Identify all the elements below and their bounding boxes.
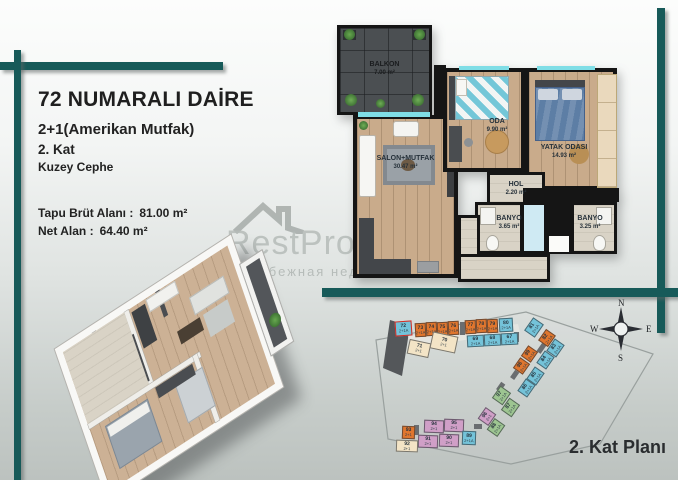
window	[459, 66, 509, 70]
window	[537, 66, 595, 70]
frame-bar-left	[14, 50, 21, 480]
site-unit-92: 922+1	[396, 440, 418, 453]
floor-plan-3d	[46, 252, 281, 470]
shower-cabin	[521, 202, 547, 254]
compass-w: W	[590, 324, 599, 334]
chair	[464, 138, 473, 147]
site-unit-90: 902+1	[439, 434, 459, 448]
gross-area-label: Tapu Brüt Alanı :	[38, 206, 133, 220]
kitchen-counter	[359, 218, 374, 262]
room-banyo-right: BANYO 3.25 m²	[571, 202, 617, 254]
frame-bar-mid	[322, 288, 678, 297]
plant-icon	[414, 29, 425, 40]
gross-area-value: 81.00 m²	[139, 206, 187, 220]
site-plan-caption: 2. Kat Planı	[516, 437, 666, 458]
room-label-hol: HOL 2.20 m²	[490, 181, 542, 197]
apartment-facade: Kuzey Cephe	[38, 160, 113, 174]
kitchen-island	[417, 261, 439, 273]
room-banyo-left: BANYO 3.65 m²	[475, 202, 523, 254]
net-area-value: 64.40 m²	[100, 224, 148, 238]
entry-hall	[458, 254, 550, 282]
site-unit-73: 732+1A	[415, 323, 427, 338]
iso-desk	[177, 317, 204, 344]
site-unit-71: 712+1	[407, 339, 432, 358]
site-unit-78: 782+1A	[476, 319, 488, 334]
site-unit-95: 952+1	[444, 419, 464, 433]
site-unit-77: 772+1A	[465, 320, 477, 335]
compass-s: S	[618, 353, 623, 363]
window	[358, 112, 430, 117]
plant-icon	[344, 29, 355, 40]
toilet	[486, 235, 499, 251]
site-unit-80: 802+1A	[499, 318, 514, 333]
armchair	[393, 121, 419, 137]
compass-e: E	[646, 324, 652, 334]
pillow	[538, 89, 558, 100]
site-unit-72: 722+1A	[394, 320, 412, 336]
iso-unit	[55, 235, 283, 480]
site-unit-89: 892+1A	[462, 431, 476, 445]
room-label-balcony: BALKON 7.00 m²	[340, 61, 429, 77]
wardrobe	[597, 74, 617, 188]
site-unit-67: 672+1A	[501, 333, 519, 346]
brochure-page: RestProperty Зарубежная недвижимость 72 …	[0, 0, 678, 480]
pillow	[456, 79, 467, 96]
plant-icon	[345, 94, 357, 106]
room-label-salon: SALON+MUTFAK 30.47 m²	[357, 155, 454, 171]
apartment-title: 72 NUMARALI DAİRE	[38, 88, 254, 112]
site-unit-91: 912+1	[418, 435, 438, 449]
floor-plan-2d: BALKON 7.00 m² SALON+MUTFAK 30.47 m²	[335, 20, 625, 288]
net-area-label: Net Alan :	[38, 224, 94, 238]
room-oda: ODA 9.90 m²	[443, 68, 525, 172]
wall	[434, 65, 446, 117]
room-label-banyo-right: BANYO 3.25 m²	[574, 215, 606, 231]
room-balcony: BALKON 7.00 m²	[337, 25, 432, 115]
service-niche	[547, 234, 571, 254]
site-unit-69: 692+1A	[467, 335, 485, 348]
net-area-line: Net Alan :64.40 m²	[38, 224, 154, 238]
apartment-floor: 2. Kat	[38, 142, 75, 157]
room-label-oda: ODA 9.90 m²	[465, 118, 529, 134]
site-unit-76: 762+1A	[448, 321, 460, 336]
toilet	[593, 235, 606, 251]
pillow	[562, 89, 582, 100]
apartment-type: 2+1(Amerikan Mutfak)	[38, 121, 194, 138]
plant-icon	[376, 99, 385, 108]
kitchen-counter	[359, 259, 411, 274]
frame-bar-right	[657, 8, 665, 333]
plant-icon	[412, 94, 424, 106]
room-label-banyo-left: BANYO 3.65 m²	[494, 215, 524, 231]
wall	[545, 202, 573, 236]
gross-area-line: Tapu Brüt Alanı :81.00 m²	[38, 206, 193, 220]
plant-icon	[359, 121, 368, 130]
frame-bar-top	[0, 62, 223, 70]
compass-icon: N S W E	[590, 297, 652, 363]
site-unit-94: 942+1	[424, 420, 444, 434]
site-unit-93: 932+1	[402, 426, 415, 439]
compass-n: N	[618, 298, 625, 308]
site-unit-79: 792+1A	[487, 319, 499, 334]
room-label-yatak: YATAK ODASI 14.93 m²	[529, 144, 599, 160]
site-unit-68: 682+1A	[484, 334, 502, 347]
bed-headboard	[535, 80, 585, 87]
